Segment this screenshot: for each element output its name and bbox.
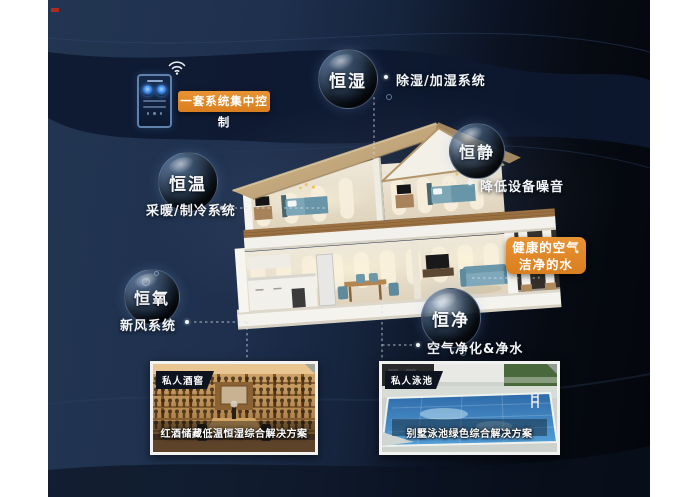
- connector-dot: [416, 343, 420, 347]
- label-fresh-air-system: 新风系统: [120, 315, 176, 334]
- label-dehumidify-humidify-system: 除湿/加湿系统: [396, 70, 486, 89]
- connector-dot: [185, 320, 189, 324]
- photo-caption: 别墅泳池绿色综合解决方案: [382, 425, 557, 440]
- label-noise-reduction: 降低设备噪音: [480, 176, 564, 195]
- wifi-icon: [167, 59, 187, 75]
- label-hvac-system: 采暖/制冷系统: [146, 200, 236, 219]
- connector-dot: [468, 181, 472, 185]
- knob-icon: [156, 85, 167, 96]
- connector-dot: [384, 75, 388, 79]
- callout-clean-water-line: 洁净的水: [506, 256, 586, 273]
- photo-badge: 私人泳池: [385, 371, 443, 389]
- label-purification-system: 空气净化&净水: [427, 338, 523, 357]
- callout-central-control: 一套系统集中控制: [178, 91, 270, 112]
- brand-mark: [51, 8, 59, 12]
- poster-canvas: 一套系统集中控制 健康的空气 洁净的水 恒湿 恒静 恒温 恒氧 恒净 除湿/加湿…: [48, 0, 650, 497]
- photo-badge: 私人酒窖: [156, 371, 214, 389]
- smart-home-controller-phone: [137, 74, 172, 128]
- photo-wine-cellar: 私人酒窖 红酒储藏低温恒湿综合解决方案: [150, 361, 318, 455]
- phone-screen-title-bar: [147, 80, 163, 82]
- photo-private-pool: 私人泳池 别墅泳池绿色综合解决方案: [379, 361, 560, 455]
- photo-caption: 红酒储藏低温恒湿综合解决方案: [153, 425, 315, 440]
- bubble-constant-humidity: 恒湿: [318, 49, 378, 109]
- photo-corner-fold: [305, 364, 315, 374]
- bubble-sparkle: [142, 278, 150, 286]
- bubble-sparkle: [386, 94, 392, 100]
- phone-control-knobs: [139, 85, 170, 96]
- knob-icon: [142, 85, 153, 96]
- phone-screen-row: [143, 100, 166, 102]
- bubble-sparkle: [154, 271, 159, 276]
- photo-corner-fold: [547, 364, 557, 374]
- callout-healthy-air-water: 健康的空气 洁净的水: [506, 237, 586, 274]
- phone-nav-dots: [139, 112, 170, 115]
- bubble-constant-quiet: 恒静: [449, 123, 505, 179]
- callout-healthy-air-line: 健康的空气: [506, 239, 586, 256]
- phone-screen-row: [143, 106, 166, 108]
